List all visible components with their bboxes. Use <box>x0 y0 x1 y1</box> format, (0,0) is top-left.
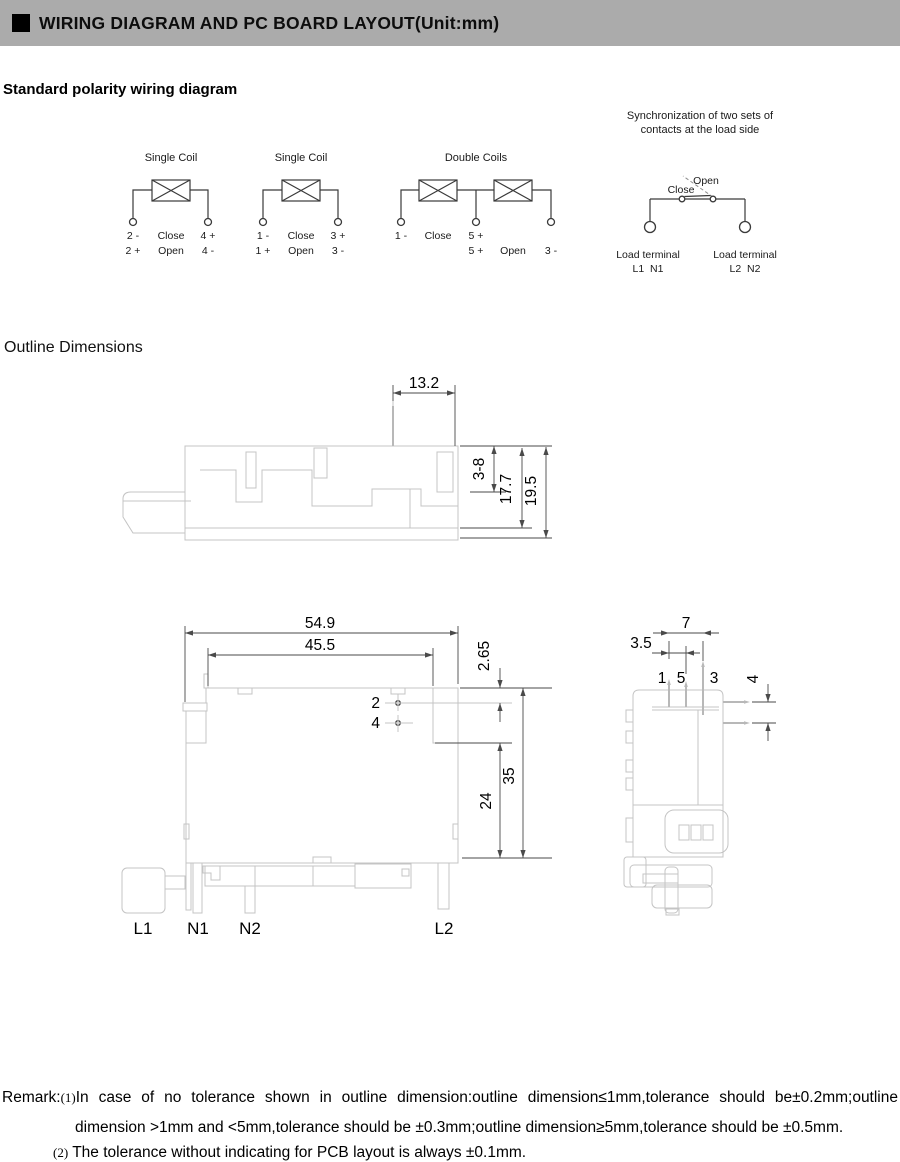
load-terminal-ids: L2 N2 <box>730 263 761 275</box>
terminal-label: 1 + <box>256 245 271 257</box>
terminal-label: 4 - <box>202 245 215 257</box>
outline-dimension-drawings: 13.2 3-8 17.7 19.5 <box>0 360 900 962</box>
dim-7: 7 <box>682 615 691 632</box>
terminal-label: 1 - <box>257 230 270 242</box>
pin-1-label: 1 <box>658 670 667 687</box>
pin-5-label: 5 <box>677 670 686 687</box>
note2-text: The tolerance without indicating for PCB… <box>72 1144 526 1161</box>
terminal-pin-n2 <box>245 886 255 913</box>
close-label: Close <box>668 184 695 196</box>
top-view-dimensions: 13.2 3-8 17.7 19.5 <box>393 375 552 538</box>
diagram-title: Single Coil <box>145 152 198 164</box>
remark-prefix: Remark: <box>2 1089 61 1106</box>
note2-marker: (2) <box>53 1145 68 1160</box>
terminal-circle <box>335 219 342 226</box>
terminal-circle <box>130 219 137 226</box>
diagram-double-coils: Double Coils 1 - Close 5 + 5 + Open 3 - <box>395 152 558 257</box>
page-title: WIRING DIAGRAM AND PC BOARD LAYOUT(Unit:… <box>39 13 499 34</box>
diagram-single-coil-1: Single Coil 2 - Close 4 + 2 + Open 4 - <box>126 152 216 257</box>
diagram-title-line1: Synchronization of two sets of <box>627 110 774 122</box>
pin-3-label: 3 <box>710 670 719 687</box>
terminal-label: 5 + <box>469 245 484 257</box>
terminal-circle <box>205 219 212 226</box>
open-label: Open <box>693 175 719 187</box>
terminal-label: 4 + <box>201 230 216 242</box>
load-terminal-circle <box>740 222 751 233</box>
note1-marker: (1) <box>61 1090 76 1105</box>
terminal-circle <box>260 219 267 226</box>
state-label: Open <box>158 245 184 257</box>
terminal-circle <box>398 219 405 226</box>
load-terminal-circle <box>645 222 656 233</box>
contact-point <box>710 196 716 202</box>
terminal-label: 3 - <box>545 245 558 257</box>
side-pins <box>723 702 744 723</box>
terminal-block-l1 <box>122 868 165 913</box>
terminal-label: 5 + <box>469 230 484 242</box>
state-label: Close <box>158 230 185 242</box>
contact-pivot <box>679 196 685 202</box>
remark-line-1: Remark:(1)In case of no tolerance shown … <box>2 1089 898 1107</box>
dim-17-7: 17.7 <box>498 474 515 504</box>
dim-2-65: 2.65 <box>476 641 493 671</box>
dim-45-5: 45.5 <box>305 637 335 654</box>
state-label: Close <box>288 230 315 242</box>
terminal-label-n1: N1 <box>187 919 209 938</box>
terminal-label-n2: N2 <box>239 919 261 938</box>
terminal-pin-l2 <box>438 863 449 909</box>
terminal-label: 2 - <box>127 230 140 242</box>
terminal-circle <box>548 219 555 226</box>
load-terminal-label: Load terminal <box>713 249 777 261</box>
outline-section-heading: Outline Dimensions <box>4 339 143 357</box>
dim-3-8: 3-8 <box>471 458 488 480</box>
diagram-title: Single Coil <box>275 152 328 164</box>
diagram-single-coil-2: Single Coil 1 - Close 3 + 1 + Open 3 - <box>256 152 346 257</box>
diagram-title-line2: contacts at the load side <box>641 124 760 136</box>
top-pins-1-5-3 <box>669 667 703 715</box>
terminal-pin-n1 <box>193 863 202 913</box>
top-view-outline <box>123 398 458 540</box>
side-view-outline <box>624 661 750 915</box>
header-bar: WIRING DIAGRAM AND PC BOARD LAYOUT(Unit:… <box>0 0 900 46</box>
datasheet-page: WIRING DIAGRAM AND PC BOARD LAYOUT(Unit:… <box>0 0 900 1162</box>
front-view-dimensions: 54.9 45.5 2.65 24 35 2 4 L1 N1 N2 L2 <box>134 615 552 938</box>
terminal-label: 2 + <box>126 245 141 257</box>
terminal-circle <box>473 219 480 226</box>
terminal-wires <box>650 199 745 221</box>
load-terminal-label: Load terminal <box>616 249 680 261</box>
wiring-section-heading: Standard polarity wiring diagram <box>3 81 237 98</box>
pin-4-label: 4 <box>371 715 380 732</box>
diagram-title: Double Coils <box>445 152 508 164</box>
state-label: Open <box>500 245 526 257</box>
dim-35: 35 <box>501 767 518 784</box>
remark-line-3: (2) The tolerance without indicating for… <box>53 1144 526 1162</box>
section-marker-icon <box>12 14 30 32</box>
terminal-label-l2: L2 <box>435 919 454 938</box>
wiring-diagrams: Single Coil 2 - Close 4 + 2 + Open 4 - S… <box>0 100 900 285</box>
note1-text-line2: dimension >1mm and <5mm,tolerance should… <box>75 1119 843 1136</box>
note1-text-line1: In case of no tolerance shown in outline… <box>76 1089 898 1106</box>
pin-2-label: 2 <box>371 695 380 712</box>
dim-54-9: 54.9 <box>305 615 335 632</box>
terminal-label: 3 - <box>332 245 345 257</box>
front-view-outline <box>183 674 512 863</box>
dim-3-5: 3.5 <box>630 635 652 652</box>
terminal-label: 1 - <box>395 230 408 242</box>
load-terminal-ids: L1 N1 <box>633 263 664 275</box>
state-label: Open <box>288 245 314 257</box>
dim-4: 4 <box>745 674 762 683</box>
dim-24: 24 <box>478 792 495 810</box>
front-view-base-assembly <box>122 863 449 913</box>
state-label: Close <box>425 230 452 242</box>
terminal-label-l1: L1 <box>134 919 153 938</box>
remark-line-2: dimension >1mm and <5mm,tolerance should… <box>75 1119 843 1137</box>
dim-13-2: 13.2 <box>409 375 439 392</box>
terminal-label: 3 + <box>331 230 346 242</box>
diagram-synchronization: Synchronization of two sets of contacts … <box>616 110 777 275</box>
dim-19-5: 19.5 <box>523 476 540 506</box>
